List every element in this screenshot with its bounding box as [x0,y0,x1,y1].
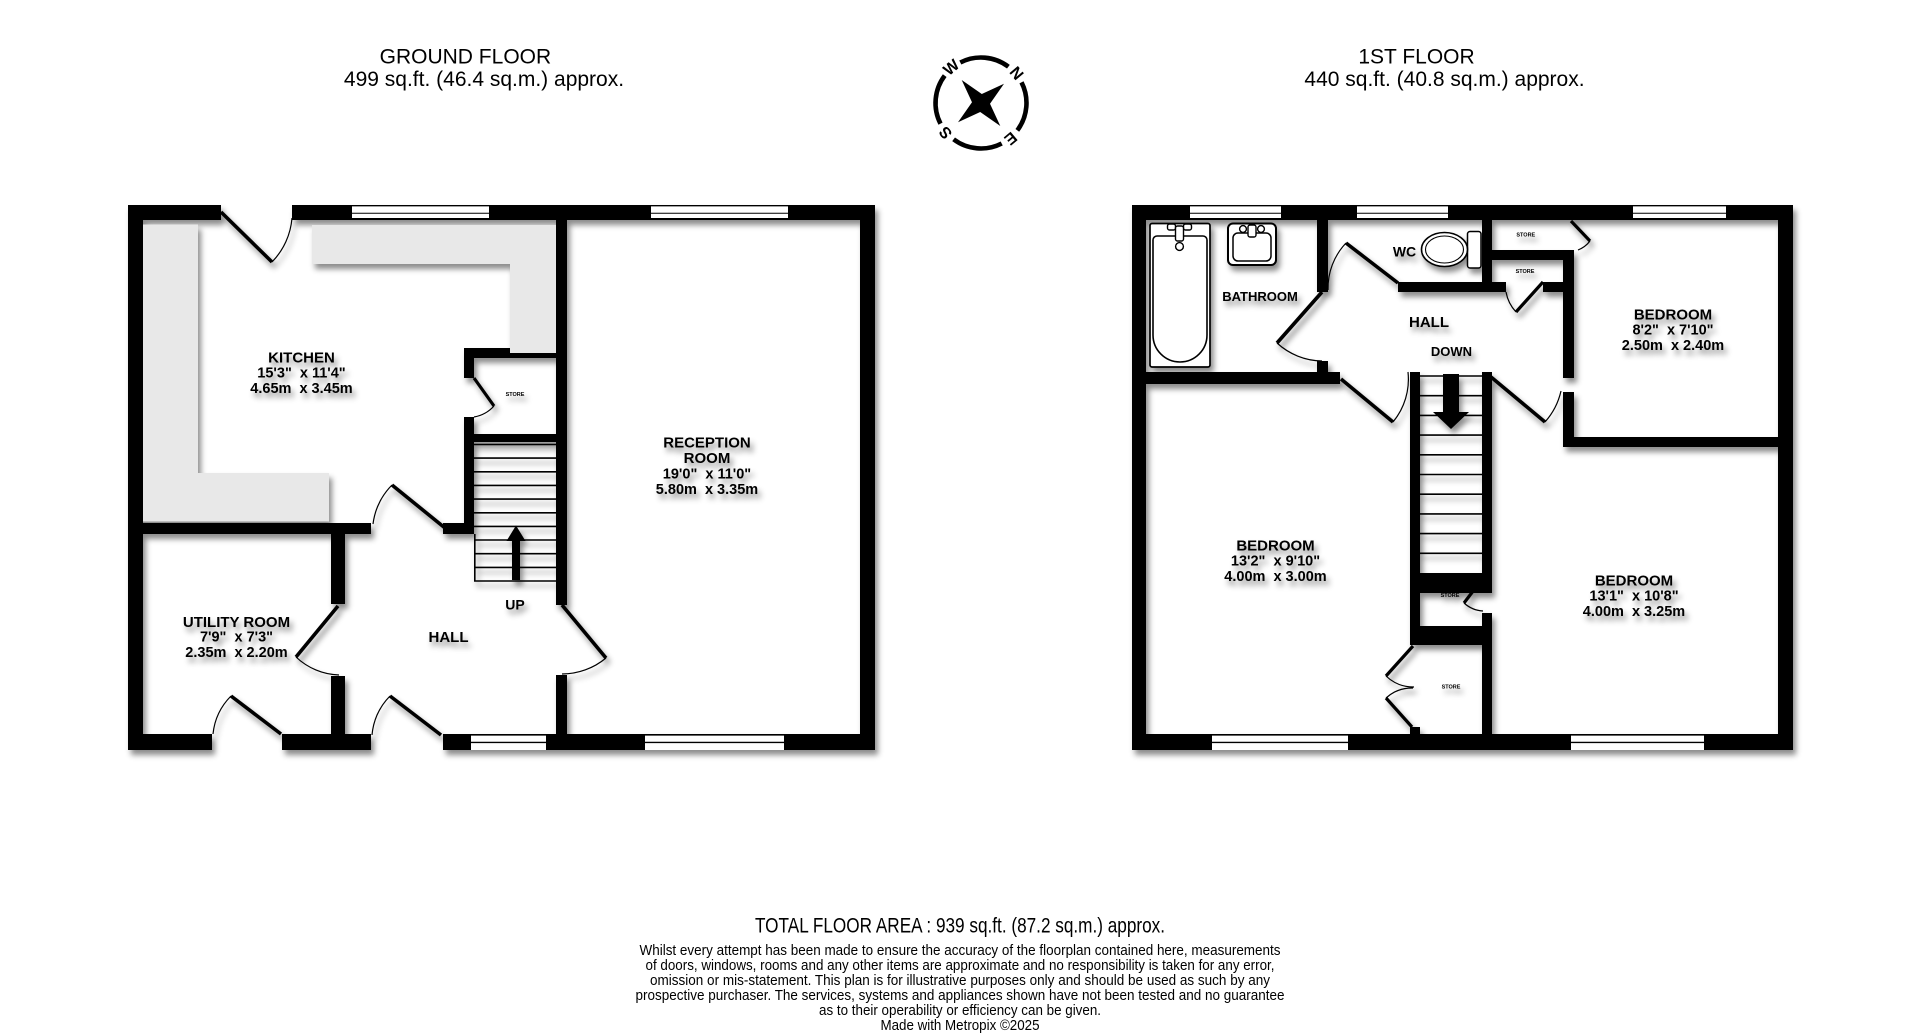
svg-text:HALL: HALL [429,629,469,646]
svg-text:STORE: STORE [1516,233,1535,239]
svg-text:N: N [1006,64,1026,84]
svg-text:13'1" x 10'8": 13'1" x 10'8" [1589,589,1678,605]
svg-text:STORE: STORE [1442,685,1461,691]
svg-text:8'2" x 7'10": 8'2" x 7'10" [1632,322,1713,338]
svg-text:ROOM: ROOM [684,450,731,467]
svg-text:19'0" x 11'0": 19'0" x 11'0" [663,466,751,482]
svg-text:15'3" x 11'4": 15'3" x 11'4" [257,365,345,381]
svg-text:1ST FLOOR: 1ST FLOOR [1358,46,1474,69]
svg-text:BEDROOM: BEDROOM [1595,573,1673,590]
svg-text:STORE: STORE [506,392,525,398]
svg-text:499 sq.ft. (46.4 sq.m.) approx: 499 sq.ft. (46.4 sq.m.) approx. [344,68,624,91]
svg-text:2.50m x 2.40m: 2.50m x 2.40m [1622,338,1724,354]
svg-text:440 sq.ft. (40.8 sq.m.) approx: 440 sq.ft. (40.8 sq.m.) approx. [1304,68,1584,91]
svg-text:7'9" x 7'3": 7'9" x 7'3" [200,630,273,646]
svg-text:WC: WC [1393,244,1416,260]
svg-text:BATHROOM: BATHROOM [1222,289,1298,304]
svg-text:BEDROOM: BEDROOM [1634,307,1712,324]
svg-text:13'2" x 9'10": 13'2" x 9'10" [1231,554,1320,570]
svg-text:4.00m x 3.00m: 4.00m x 3.00m [1224,569,1326,585]
svg-text:5.80m x 3.35m: 5.80m x 3.35m [656,482,758,498]
svg-text:4.65m x 3.45m: 4.65m x 3.45m [250,381,352,397]
svg-text:DOWN: DOWN [1431,344,1472,359]
svg-text:Made with Metropix ©2025: Made with Metropix ©2025 [881,1017,1040,1033]
svg-text:UP: UP [505,597,524,613]
svg-text:STORE: STORE [1441,593,1460,599]
svg-text:KITCHEN: KITCHEN [268,350,335,367]
svg-text:GROUND FLOOR: GROUND FLOOR [380,46,552,69]
svg-text:STORE: STORE [1516,269,1535,275]
svg-text:HALL: HALL [1409,314,1449,331]
svg-text:TOTAL FLOOR AREA : 939 sq.ft.: TOTAL FLOOR AREA : 939 sq.ft. (87.2 sq.m… [755,914,1165,937]
svg-text:E: E [1000,128,1019,148]
svg-text:BEDROOM: BEDROOM [1236,538,1314,555]
svg-text:S: S [936,122,956,141]
svg-text:2.35m x 2.20m: 2.35m x 2.20m [185,645,287,661]
svg-text:UTILITY ROOM: UTILITY ROOM [183,614,290,631]
svg-text:RECEPTION: RECEPTION [663,435,751,452]
svg-text:4.00m x 3.25m: 4.00m x 3.25m [1583,604,1685,620]
